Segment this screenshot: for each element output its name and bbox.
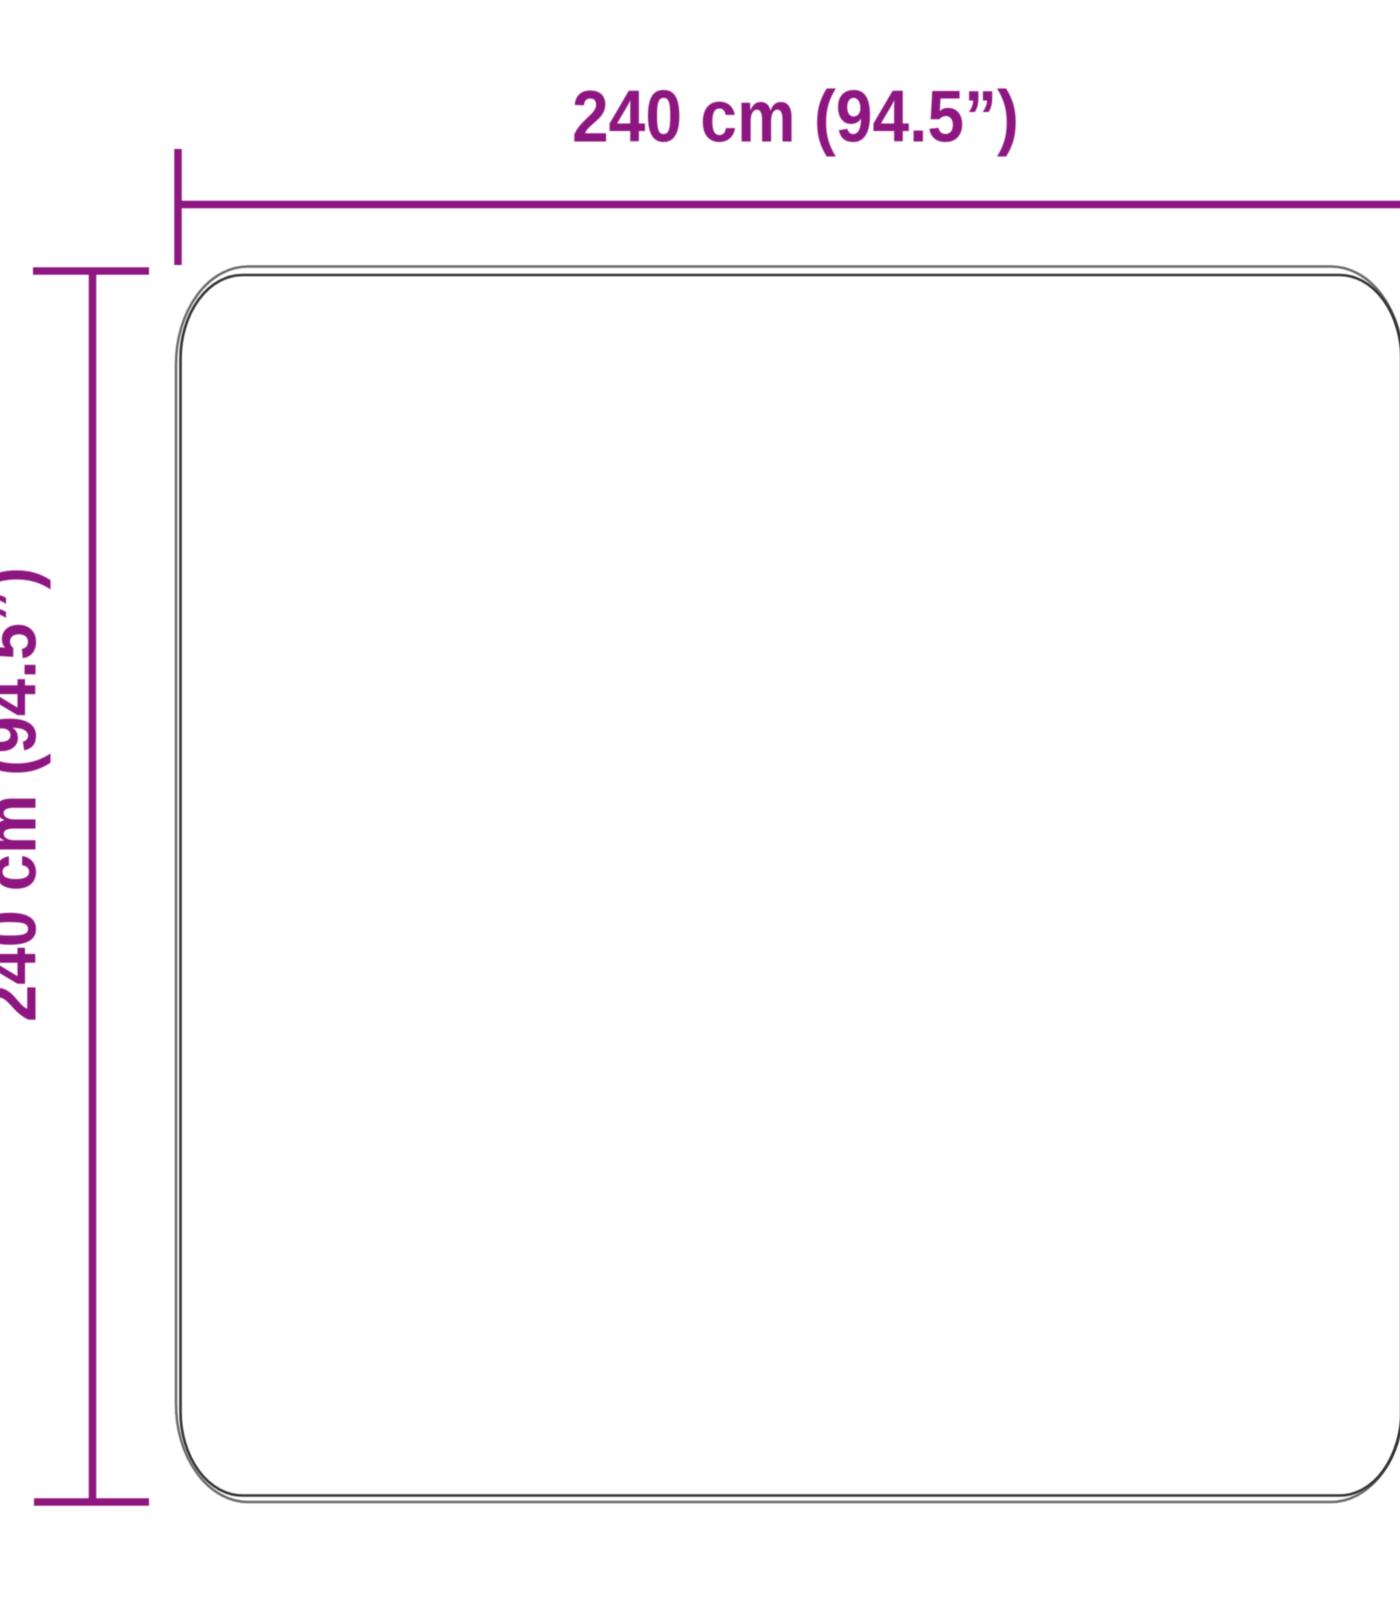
svg-text:240 cm (94.5”): 240 cm (94.5”): [0, 567, 52, 1022]
svg-text:240 cm (94.5”): 240 cm (94.5”): [572, 77, 1019, 158]
